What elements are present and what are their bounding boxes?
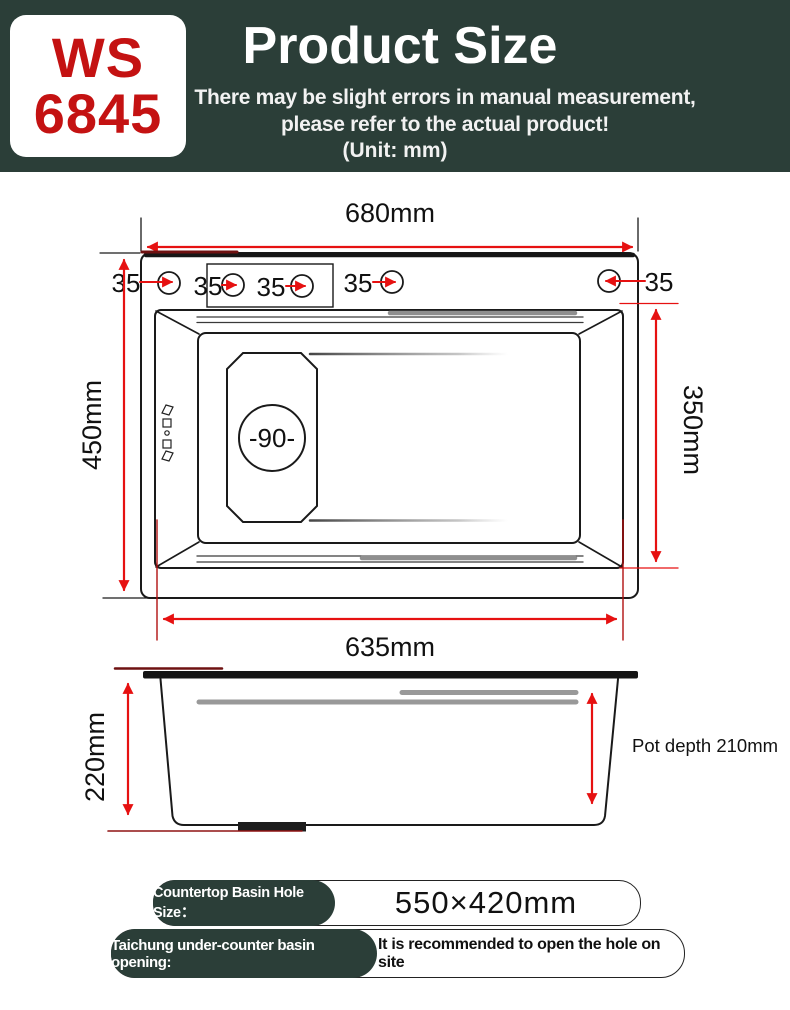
- undercounter-opening-pill: Taichung under-counter basin opening: It…: [111, 929, 685, 978]
- hole-diameter-label: 35: [257, 272, 286, 302]
- basin-width-dimension-label: 635mm: [345, 632, 435, 662]
- hole-diameter-label: 35: [112, 268, 141, 298]
- header-banner: WS 6845 Product Size There may be slight…: [0, 0, 790, 172]
- total-width-dimension-label: 680mm: [345, 198, 435, 228]
- undercounter-opening-label: Taichung under-counter basin opening:: [111, 929, 377, 978]
- total-depth-dimension-label: 450mm: [77, 380, 107, 470]
- countertop-rim-bar: [143, 671, 638, 679]
- disclaimer-line-1: There may be slight errors in manual mea…: [100, 84, 790, 111]
- top-view: 680mm 35 35 35 35 35: [77, 198, 708, 662]
- basin-depth-dimension-label: 350mm: [678, 385, 708, 475]
- pot-depth-label: Pot depth 210mm: [632, 735, 778, 756]
- drain-stub: [238, 822, 306, 832]
- side-view: 220mm Pot depth 210mm: [80, 669, 778, 832]
- countertop-hole-size-label: Countertop Basin Hole Size：: [153, 880, 335, 926]
- disclaimer-line-2: please refer to the actual product!: [100, 111, 790, 138]
- undercounter-opening-value: It is recommended to open the hole on si…: [378, 930, 680, 977]
- drain-diameter-label: -90-: [249, 423, 295, 453]
- side-height-dimension-label: 220mm: [80, 712, 110, 802]
- unit-note: (Unit: mm): [0, 139, 790, 163]
- hole-diameter-label: 35: [344, 268, 373, 298]
- countertop-hole-size-pill: Countertop Basin Hole Size： 550×420mm: [153, 880, 641, 926]
- page-title: Product Size: [190, 16, 610, 76]
- product-size-infographic: 680mm 35 35 35 35 35: [0, 0, 790, 1010]
- hole-diameter-label: 35: [645, 267, 674, 297]
- model-code-top: WS: [52, 30, 144, 86]
- hole-diameter-label: 35: [194, 271, 223, 301]
- measurement-disclaimer: There may be slight errors in manual mea…: [100, 84, 790, 138]
- countertop-hole-size-value: 550×420mm: [336, 881, 636, 925]
